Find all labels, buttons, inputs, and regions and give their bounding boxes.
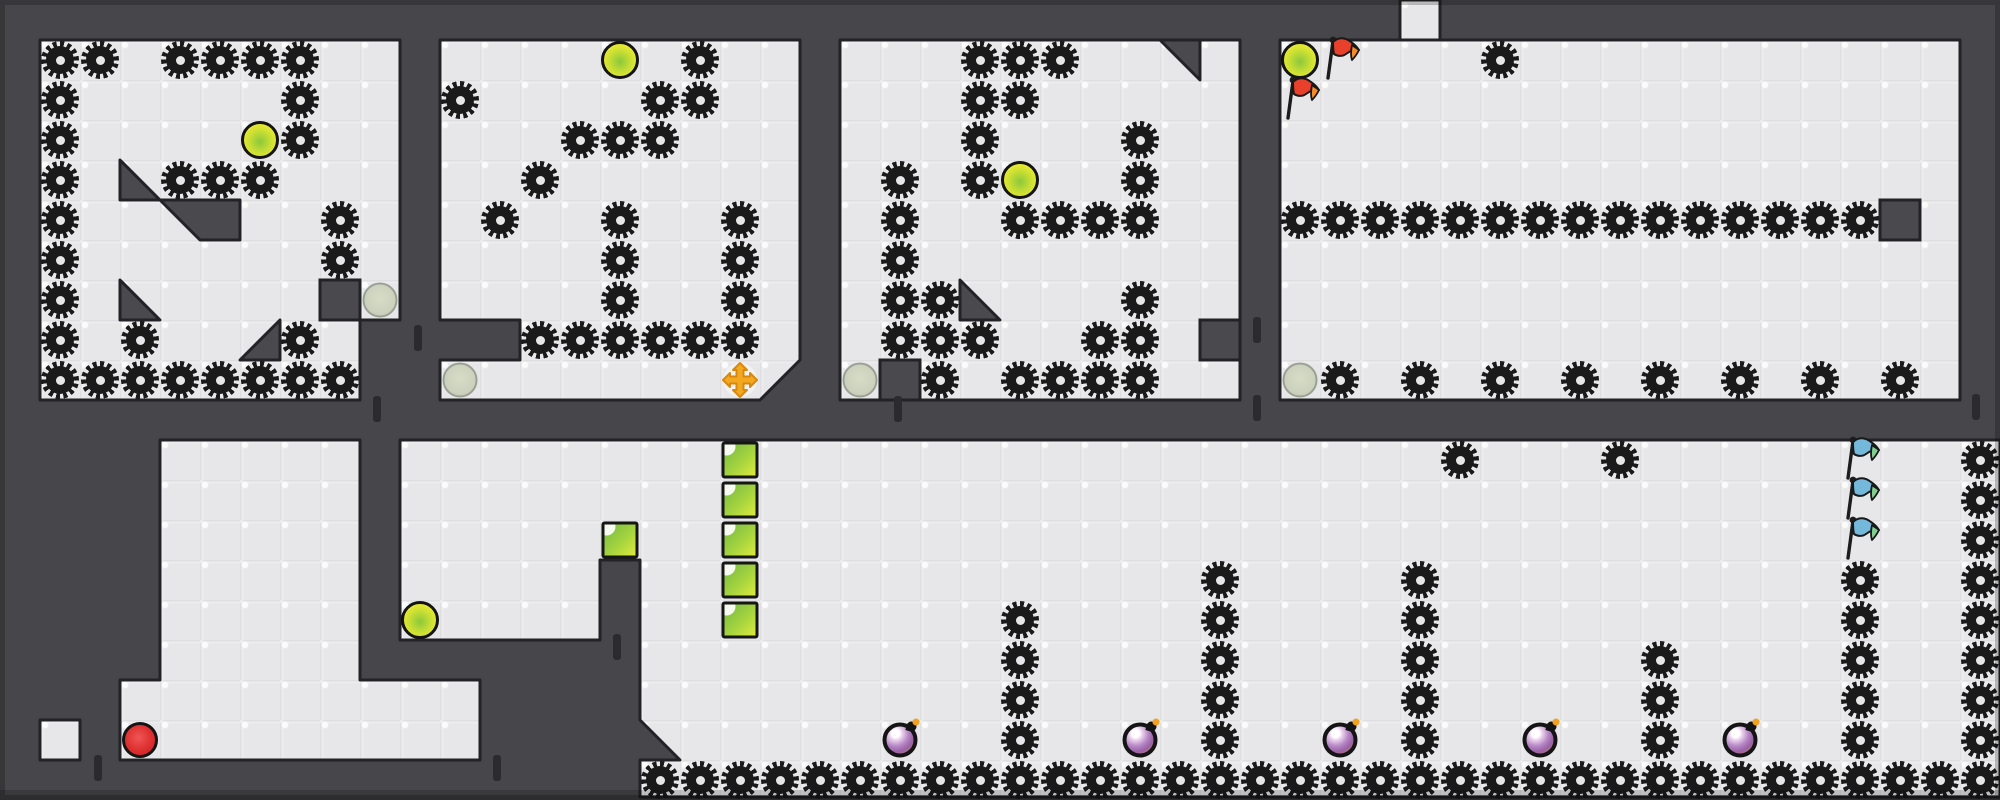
saw-blade[interactable] [1121,121,1159,159]
saw-blade[interactable] [161,161,199,199]
saw-blade[interactable] [1761,761,1799,799]
saw-blade[interactable] [1681,201,1719,239]
saw-blade[interactable] [1681,761,1719,799]
level-map-canvas[interactable] [0,0,2000,800]
saw-blade[interactable] [1401,601,1439,639]
saw-blade[interactable] [681,41,719,79]
saw-blade[interactable] [121,361,159,399]
saw-blade[interactable] [561,121,599,159]
saw-blade[interactable] [321,201,359,239]
saw-blade[interactable] [1121,201,1159,239]
saw-blade[interactable] [1401,721,1439,759]
saw-blade[interactable] [481,201,519,239]
yellow-ball[interactable] [241,121,279,159]
saw-blade[interactable] [601,121,639,159]
saw-blade[interactable] [1201,601,1239,639]
saw-blade[interactable] [1041,361,1079,399]
saw-blade[interactable] [41,201,79,239]
saw-blade[interactable] [961,321,999,359]
red-ball[interactable] [122,722,158,758]
saw-blade[interactable] [1001,201,1039,239]
green-item-block[interactable] [722,562,759,599]
orange-move-cross[interactable] [720,360,760,400]
saw-blade[interactable] [641,81,679,119]
gray-ball[interactable] [443,363,478,398]
saw-blade[interactable] [1001,681,1039,719]
saw-blade[interactable] [1601,441,1639,479]
gray-ball[interactable] [843,363,878,398]
saw-blade[interactable] [1601,761,1639,799]
saw-blade[interactable] [1561,201,1599,239]
saw-blade[interactable] [41,161,79,199]
saw-blade[interactable] [1201,681,1239,719]
saw-blade[interactable] [281,81,319,119]
red-flag-icon [1279,73,1321,121]
saw-blade[interactable] [1001,721,1039,759]
bomb[interactable] [1123,723,1158,758]
saw-blade[interactable] [1401,201,1439,239]
saw-blade[interactable] [1401,561,1439,599]
saw-blade[interactable] [1281,201,1319,239]
saw-blade[interactable] [881,321,919,359]
saw-blade[interactable] [961,121,999,159]
saw-blade[interactable] [601,241,639,279]
saw-blade[interactable] [1121,761,1159,799]
saw-blade[interactable] [721,321,759,359]
saw-blade[interactable] [1481,761,1519,799]
door-marker[interactable] [373,396,381,422]
saw-blade[interactable] [1801,361,1839,399]
saw-blade[interactable] [1841,681,1879,719]
saw-blade[interactable] [1481,201,1519,239]
saw-blade[interactable] [1041,41,1079,79]
saw-blade[interactable] [1721,201,1759,239]
red-flag[interactable] [1279,73,1321,121]
saw-blade[interactable] [281,121,319,159]
saw-blade[interactable] [241,361,279,399]
saw-blade[interactable] [1401,761,1439,799]
door-marker[interactable] [613,634,621,660]
saw-blade[interactable] [761,761,799,799]
saw-blade[interactable] [281,321,319,359]
saw-blade[interactable] [921,761,959,799]
saw-blade[interactable] [1121,361,1159,399]
saw-blade[interactable] [1521,201,1559,239]
saw-blade[interactable] [601,201,639,239]
saw-blade[interactable] [281,361,319,399]
saw-blade[interactable] [641,321,679,359]
saw-blade[interactable] [1121,161,1159,199]
yellow-ball[interactable] [1001,161,1039,199]
saw-blade[interactable] [721,241,759,279]
saw-blade[interactable] [641,761,679,799]
bomb[interactable] [1323,723,1358,758]
saw-blade[interactable] [321,241,359,279]
door-marker[interactable] [1253,395,1261,421]
gray-ball[interactable] [1283,363,1318,398]
saw-blade[interactable] [881,761,919,799]
saw-blade[interactable] [81,361,119,399]
saw-blade[interactable] [41,361,79,399]
saw-blade[interactable] [281,41,319,79]
saw-blade[interactable] [601,281,639,319]
saw-blade[interactable] [441,81,479,119]
saw-blade[interactable] [121,321,159,359]
saw-blade[interactable] [921,361,959,399]
saw-blade[interactable] [841,761,879,799]
saw-blade[interactable] [241,161,279,199]
green-item-block[interactable] [722,522,759,559]
saw-blade[interactable] [1081,761,1119,799]
saw-blade[interactable] [1001,361,1039,399]
saw-blade[interactable] [681,321,719,359]
saw-blade[interactable] [1841,761,1879,799]
saw-blade[interactable] [81,41,119,79]
saw-blade[interactable] [881,201,919,239]
saw-blade[interactable] [1961,761,1999,799]
saw-blade[interactable] [601,321,639,359]
saw-blade[interactable] [1361,201,1399,239]
saw-blade[interactable] [1321,761,1359,799]
saw-blade[interactable] [241,41,279,79]
saw-blade[interactable] [321,361,359,399]
saw-blade[interactable] [1081,201,1119,239]
saw-blade[interactable] [1201,721,1239,759]
saw-blade[interactable] [1961,521,1999,559]
saw-blade[interactable] [801,761,839,799]
move-cross-icon [720,360,760,400]
saw-blade[interactable] [1721,761,1759,799]
bomb[interactable] [1723,723,1758,758]
saw-blade[interactable] [1001,641,1039,679]
saw-blade[interactable] [1841,201,1879,239]
door-marker[interactable] [493,755,501,781]
door-marker[interactable] [1253,317,1261,343]
saw-blade[interactable] [1441,441,1479,479]
saw-blade[interactable] [41,41,79,79]
saw-blade[interactable] [721,281,759,319]
saw-blade[interactable] [1641,761,1679,799]
saw-blade[interactable] [881,281,919,319]
saw-blade[interactable] [1961,441,1999,479]
yellow-ball[interactable] [601,41,639,79]
saw-blade[interactable] [201,41,239,79]
saw-blade[interactable] [1561,361,1599,399]
saw-blade[interactable] [1401,681,1439,719]
saw-blade[interactable] [1841,641,1879,679]
saw-blade[interactable] [1801,761,1839,799]
saw-blade[interactable] [521,161,559,199]
saw-blade[interactable] [961,761,999,799]
saw-blade[interactable] [1881,761,1919,799]
saw-blade[interactable] [1601,201,1639,239]
saw-blade[interactable] [1961,561,1999,599]
saw-blade[interactable] [1961,601,1999,639]
saw-blade[interactable] [1961,721,1999,759]
saw-blade[interactable] [1001,81,1039,119]
blue-flag[interactable] [1839,513,1881,561]
door-marker[interactable] [94,755,102,781]
saw-blade[interactable] [1441,201,1479,239]
saw-blade[interactable] [41,121,79,159]
saw-blade[interactable] [41,81,79,119]
saw-blade[interactable] [1081,361,1119,399]
saw-blade[interactable] [161,361,199,399]
saw-blade[interactable] [1321,361,1359,399]
saw-blade[interactable] [1801,201,1839,239]
saw-blade[interactable] [1841,561,1879,599]
saw-blade[interactable] [1961,481,1999,519]
saw-blade[interactable] [1881,361,1919,399]
saw-blade[interactable] [1561,761,1599,799]
green-item-block[interactable] [722,442,759,479]
saw-blade[interactable] [641,121,679,159]
saw-blade[interactable] [1401,361,1439,399]
saw-blade[interactable] [1001,761,1039,799]
saw-blade[interactable] [921,321,959,359]
saw-blade[interactable] [721,201,759,239]
saw-blade[interactable] [881,241,919,279]
saw-blade[interactable] [1121,281,1159,319]
saw-blade[interactable] [961,81,999,119]
saw-blade[interactable] [1081,321,1119,359]
bomb[interactable] [1523,723,1558,758]
saw-blade[interactable] [881,161,919,199]
door-marker[interactable] [414,325,422,351]
saw-blade[interactable] [1641,681,1679,719]
saw-blade[interactable] [561,321,599,359]
saw-blade[interactable] [1841,601,1879,639]
saw-blade[interactable] [961,161,999,199]
red-flag-icon [1319,33,1361,81]
saw-blade[interactable] [41,241,79,279]
door-marker[interactable] [894,396,902,422]
saw-blade[interactable] [521,321,559,359]
green-item-block[interactable] [722,602,759,639]
saw-blade[interactable] [1201,561,1239,599]
saw-blade[interactable] [1441,761,1479,799]
saw-blade[interactable] [1201,641,1239,679]
saw-blade[interactable] [1001,601,1039,639]
green-item-block[interactable] [602,522,639,559]
saw-blade[interactable] [1721,361,1759,399]
saw-blade[interactable] [681,81,719,119]
saw-blade[interactable] [961,41,999,79]
saw-blade[interactable] [921,281,959,319]
saw-blade[interactable] [1281,761,1319,799]
saw-blade[interactable] [721,761,759,799]
gray-ball[interactable] [363,283,398,318]
saw-blade[interactable] [1361,761,1399,799]
saw-blade[interactable] [41,321,79,359]
saw-blade[interactable] [1921,761,1959,799]
saw-blade[interactable] [1641,201,1679,239]
saw-blade[interactable] [1401,641,1439,679]
door-marker[interactable] [1972,394,1980,420]
saw-blade[interactable] [1481,41,1519,79]
saw-blade[interactable] [1761,201,1799,239]
saw-blade[interactable] [1641,641,1679,679]
saw-blade[interactable] [681,761,719,799]
saw-blade[interactable] [161,41,199,79]
saw-blade[interactable] [1041,761,1079,799]
saw-blade[interactable] [1321,201,1359,239]
saw-blade[interactable] [1641,721,1679,759]
red-flag[interactable] [1319,33,1361,81]
saw-blade[interactable] [1161,761,1199,799]
saw-blade[interactable] [201,361,239,399]
saw-blade[interactable] [1841,721,1879,759]
blue-flag-icon [1839,513,1881,561]
saw-blade[interactable] [1961,681,1999,719]
saw-blade[interactable] [201,161,239,199]
saw-blade[interactable] [1521,761,1559,799]
saw-blade[interactable] [1961,641,1999,679]
saw-blade[interactable] [1121,321,1159,359]
saw-blade[interactable] [1241,761,1279,799]
saw-blade[interactable] [1201,761,1239,799]
saw-blade[interactable] [1041,201,1079,239]
bomb[interactable] [883,723,918,758]
saw-blade[interactable] [41,281,79,319]
saw-blade[interactable] [1641,361,1679,399]
saw-blade[interactable] [1481,361,1519,399]
saw-blade[interactable] [1001,41,1039,79]
green-item-block[interactable] [722,482,759,519]
yellow-ball[interactable] [401,601,439,639]
